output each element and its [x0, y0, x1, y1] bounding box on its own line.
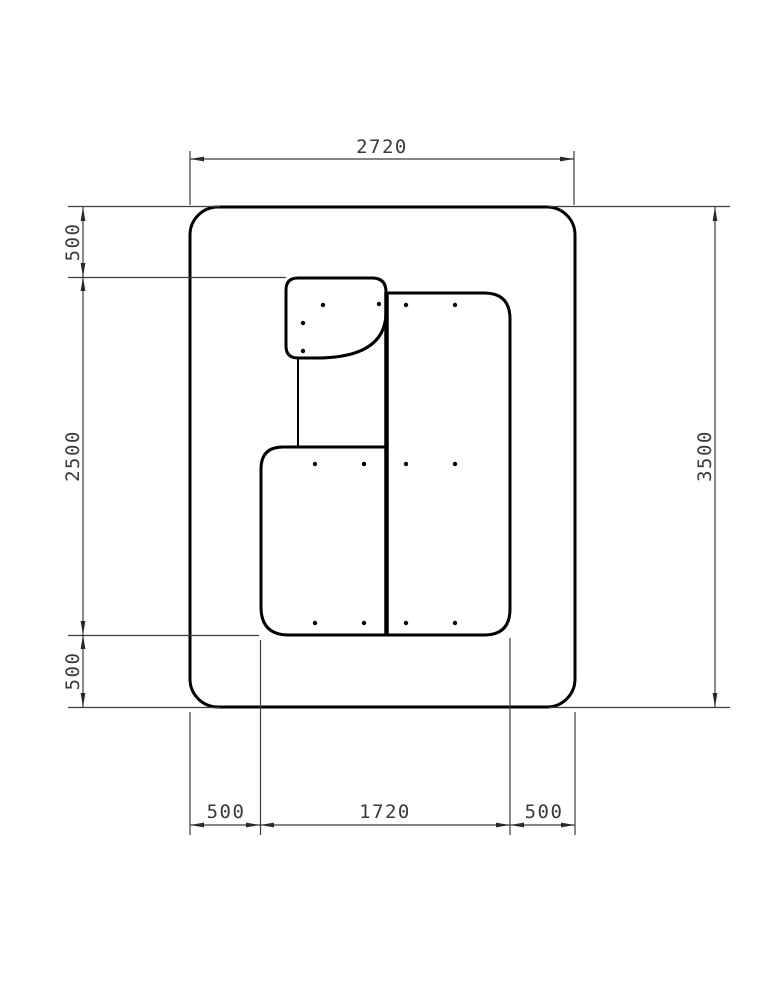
fastener-dot — [321, 303, 325, 307]
dim-arrow — [260, 823, 274, 828]
dim-arrow — [560, 157, 574, 162]
dim-arrow — [81, 693, 86, 707]
dim-arrow — [81, 621, 86, 635]
extension-lines — [68, 151, 730, 835]
dim-label-left-bottom-offset: 500 — [62, 652, 84, 691]
fastener-dot — [301, 349, 305, 353]
fastener-dot — [377, 302, 381, 306]
dim-label-top-width: 2720 — [356, 136, 408, 158]
dim-arrow — [81, 277, 86, 291]
fastener-dot — [453, 462, 457, 466]
fastener-dot — [301, 321, 305, 325]
fastener-dot — [313, 621, 317, 625]
fastener-dot — [404, 462, 408, 466]
dim-label-left-top-offset: 500 — [62, 223, 84, 262]
dim-arrow — [81, 635, 86, 649]
top-seat-outline — [286, 278, 386, 358]
fastener-dot — [453, 303, 457, 307]
dim-arrow — [81, 263, 86, 277]
dim-arrow — [713, 693, 718, 707]
fastener-dot — [313, 462, 317, 466]
fastener-dot — [362, 462, 366, 466]
dim-label-bottom-inner-width: 1720 — [359, 801, 411, 823]
dim-arrow — [510, 823, 524, 828]
fastener-dot — [362, 621, 366, 625]
dim-label-bottom-right-offset: 500 — [525, 801, 564, 823]
dim-label-bottom-left-offset: 500 — [207, 801, 246, 823]
cad-canvas: 2720 500 2500 500 3500 500 1720 500 — [0, 0, 772, 1000]
drawing-page: 2720 500 2500 500 3500 500 1720 500 — [0, 0, 772, 1000]
bottom-left-panel-outline — [261, 447, 386, 635]
dim-label-right-total-height: 3500 — [694, 430, 716, 482]
dim-arrow — [713, 207, 718, 221]
dim-arrow — [496, 823, 510, 828]
dimension-labels: 2720 500 2500 500 3500 500 1720 500 — [62, 136, 716, 823]
dim-label-left-inner-height: 2500 — [62, 430, 84, 482]
fastener-dot — [404, 621, 408, 625]
dim-arrow — [190, 157, 204, 162]
dim-arrow — [246, 823, 260, 828]
fastener-dot — [404, 303, 408, 307]
dim-arrow — [561, 823, 575, 828]
dimension-arrows — [81, 157, 718, 828]
fastener-dots — [301, 302, 457, 625]
dimension-lines — [83, 159, 715, 825]
dim-arrow — [190, 823, 204, 828]
fastener-dot — [453, 621, 457, 625]
dim-arrow — [81, 207, 86, 221]
